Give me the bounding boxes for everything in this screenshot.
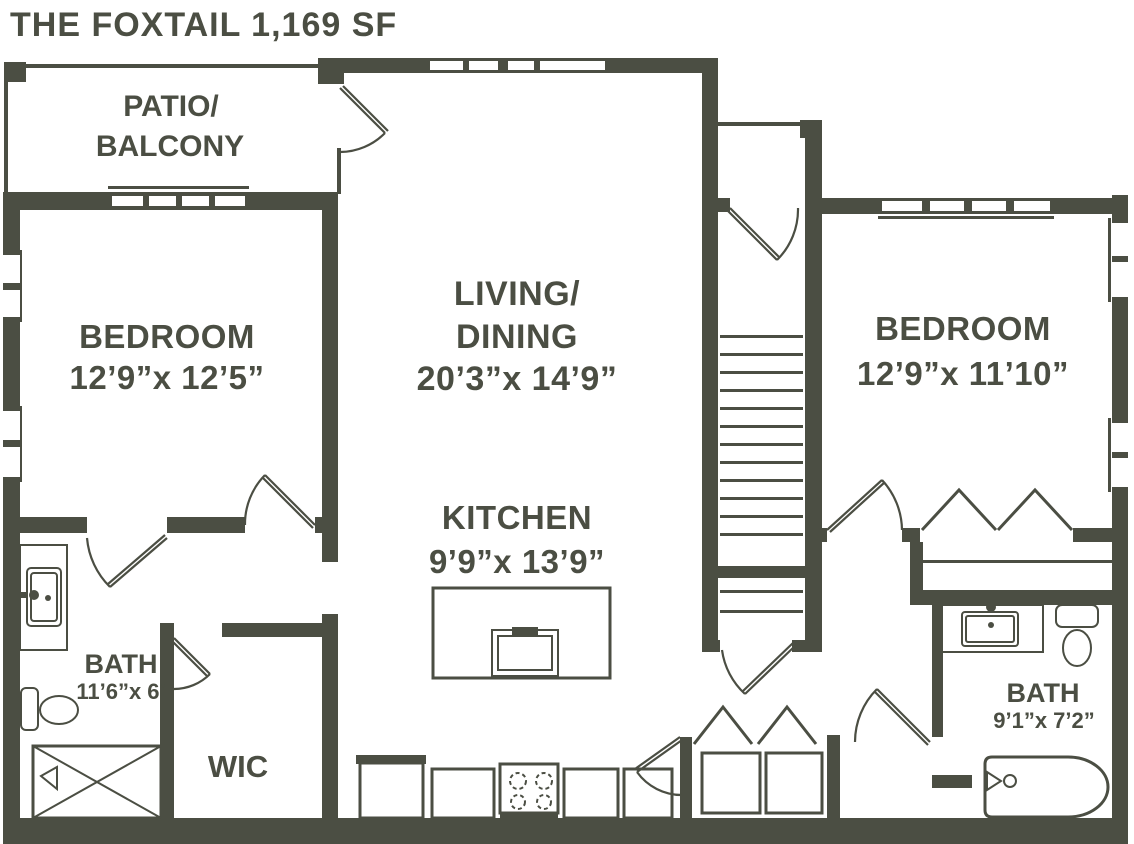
- room-dims-bedroom-right: 12’9”x 11’10”: [857, 355, 1069, 392]
- room-dims-kitchen: 9’9”x 13’9”: [429, 543, 605, 580]
- pantry-door: [635, 737, 682, 795]
- floor-plan-page: THE FOXTAIL 1,169 SF PATIO/ BALCONY BEDR…: [0, 0, 1134, 844]
- stair-bottom-door: [722, 642, 796, 694]
- bedroom-left-door: [245, 475, 315, 528]
- kitchen-island-sink-icon: [433, 588, 610, 678]
- washer-icon: [702, 753, 760, 813]
- laundry-bifold-icon: [694, 707, 816, 744]
- bath-right-door: [855, 689, 930, 745]
- entry-door: [727, 208, 798, 260]
- room-label-bedroom-right: BEDROOM: [875, 310, 1051, 347]
- vanity-sink-right-icon: [940, 598, 1043, 652]
- patio-door: [340, 86, 388, 152]
- dryer-icon: [766, 753, 822, 813]
- room-label-bath-right: BATH: [1007, 678, 1080, 708]
- room-label-bath-left: BATH: [85, 649, 158, 679]
- bedroom-right-door: [827, 480, 902, 532]
- room-label-patio-line2: BALCONY: [96, 130, 244, 163]
- bedroom-right-closet-bifold-icon: [922, 490, 1072, 530]
- room-label-patio-line1: PATIO/: [123, 90, 219, 123]
- shower-icon: [33, 746, 161, 818]
- toilet-right-icon: [1056, 605, 1098, 666]
- room-dims-bath-left: 11’6”x 6’: [76, 679, 165, 704]
- room-label-living-line2: DINING: [456, 318, 578, 356]
- room-label-living-line1: LIVING/: [454, 275, 580, 313]
- wic-door: [172, 638, 210, 689]
- page-title: THE FOXTAIL 1,169 SF: [10, 6, 397, 44]
- closet-rod-icon: [923, 560, 1112, 563]
- range-4-burner-icon: [500, 764, 558, 818]
- kitchen-counter-icon: [432, 769, 672, 818]
- staircase: [718, 335, 805, 613]
- walls: [3, 58, 1128, 844]
- room-dims-living: 20’3”x 14’9”: [417, 360, 618, 398]
- toilet-left-icon: [21, 688, 78, 730]
- bathtub-icon: [985, 757, 1108, 817]
- floor-plan: THE FOXTAIL 1,169 SF PATIO/ BALCONY BEDR…: [0, 0, 1134, 844]
- refrigerator-icon: [356, 755, 426, 818]
- bath-left-door: [87, 535, 167, 587]
- room-dims-bedroom-left: 12’9”x 12’5”: [70, 359, 265, 396]
- room-label-kitchen: KITCHEN: [442, 499, 592, 536]
- room-label-wic: WIC: [208, 749, 268, 784]
- room-dims-bath-right: 9’1”x 7’2”: [993, 708, 1095, 733]
- room-label-bedroom-left: BEDROOM: [79, 318, 255, 355]
